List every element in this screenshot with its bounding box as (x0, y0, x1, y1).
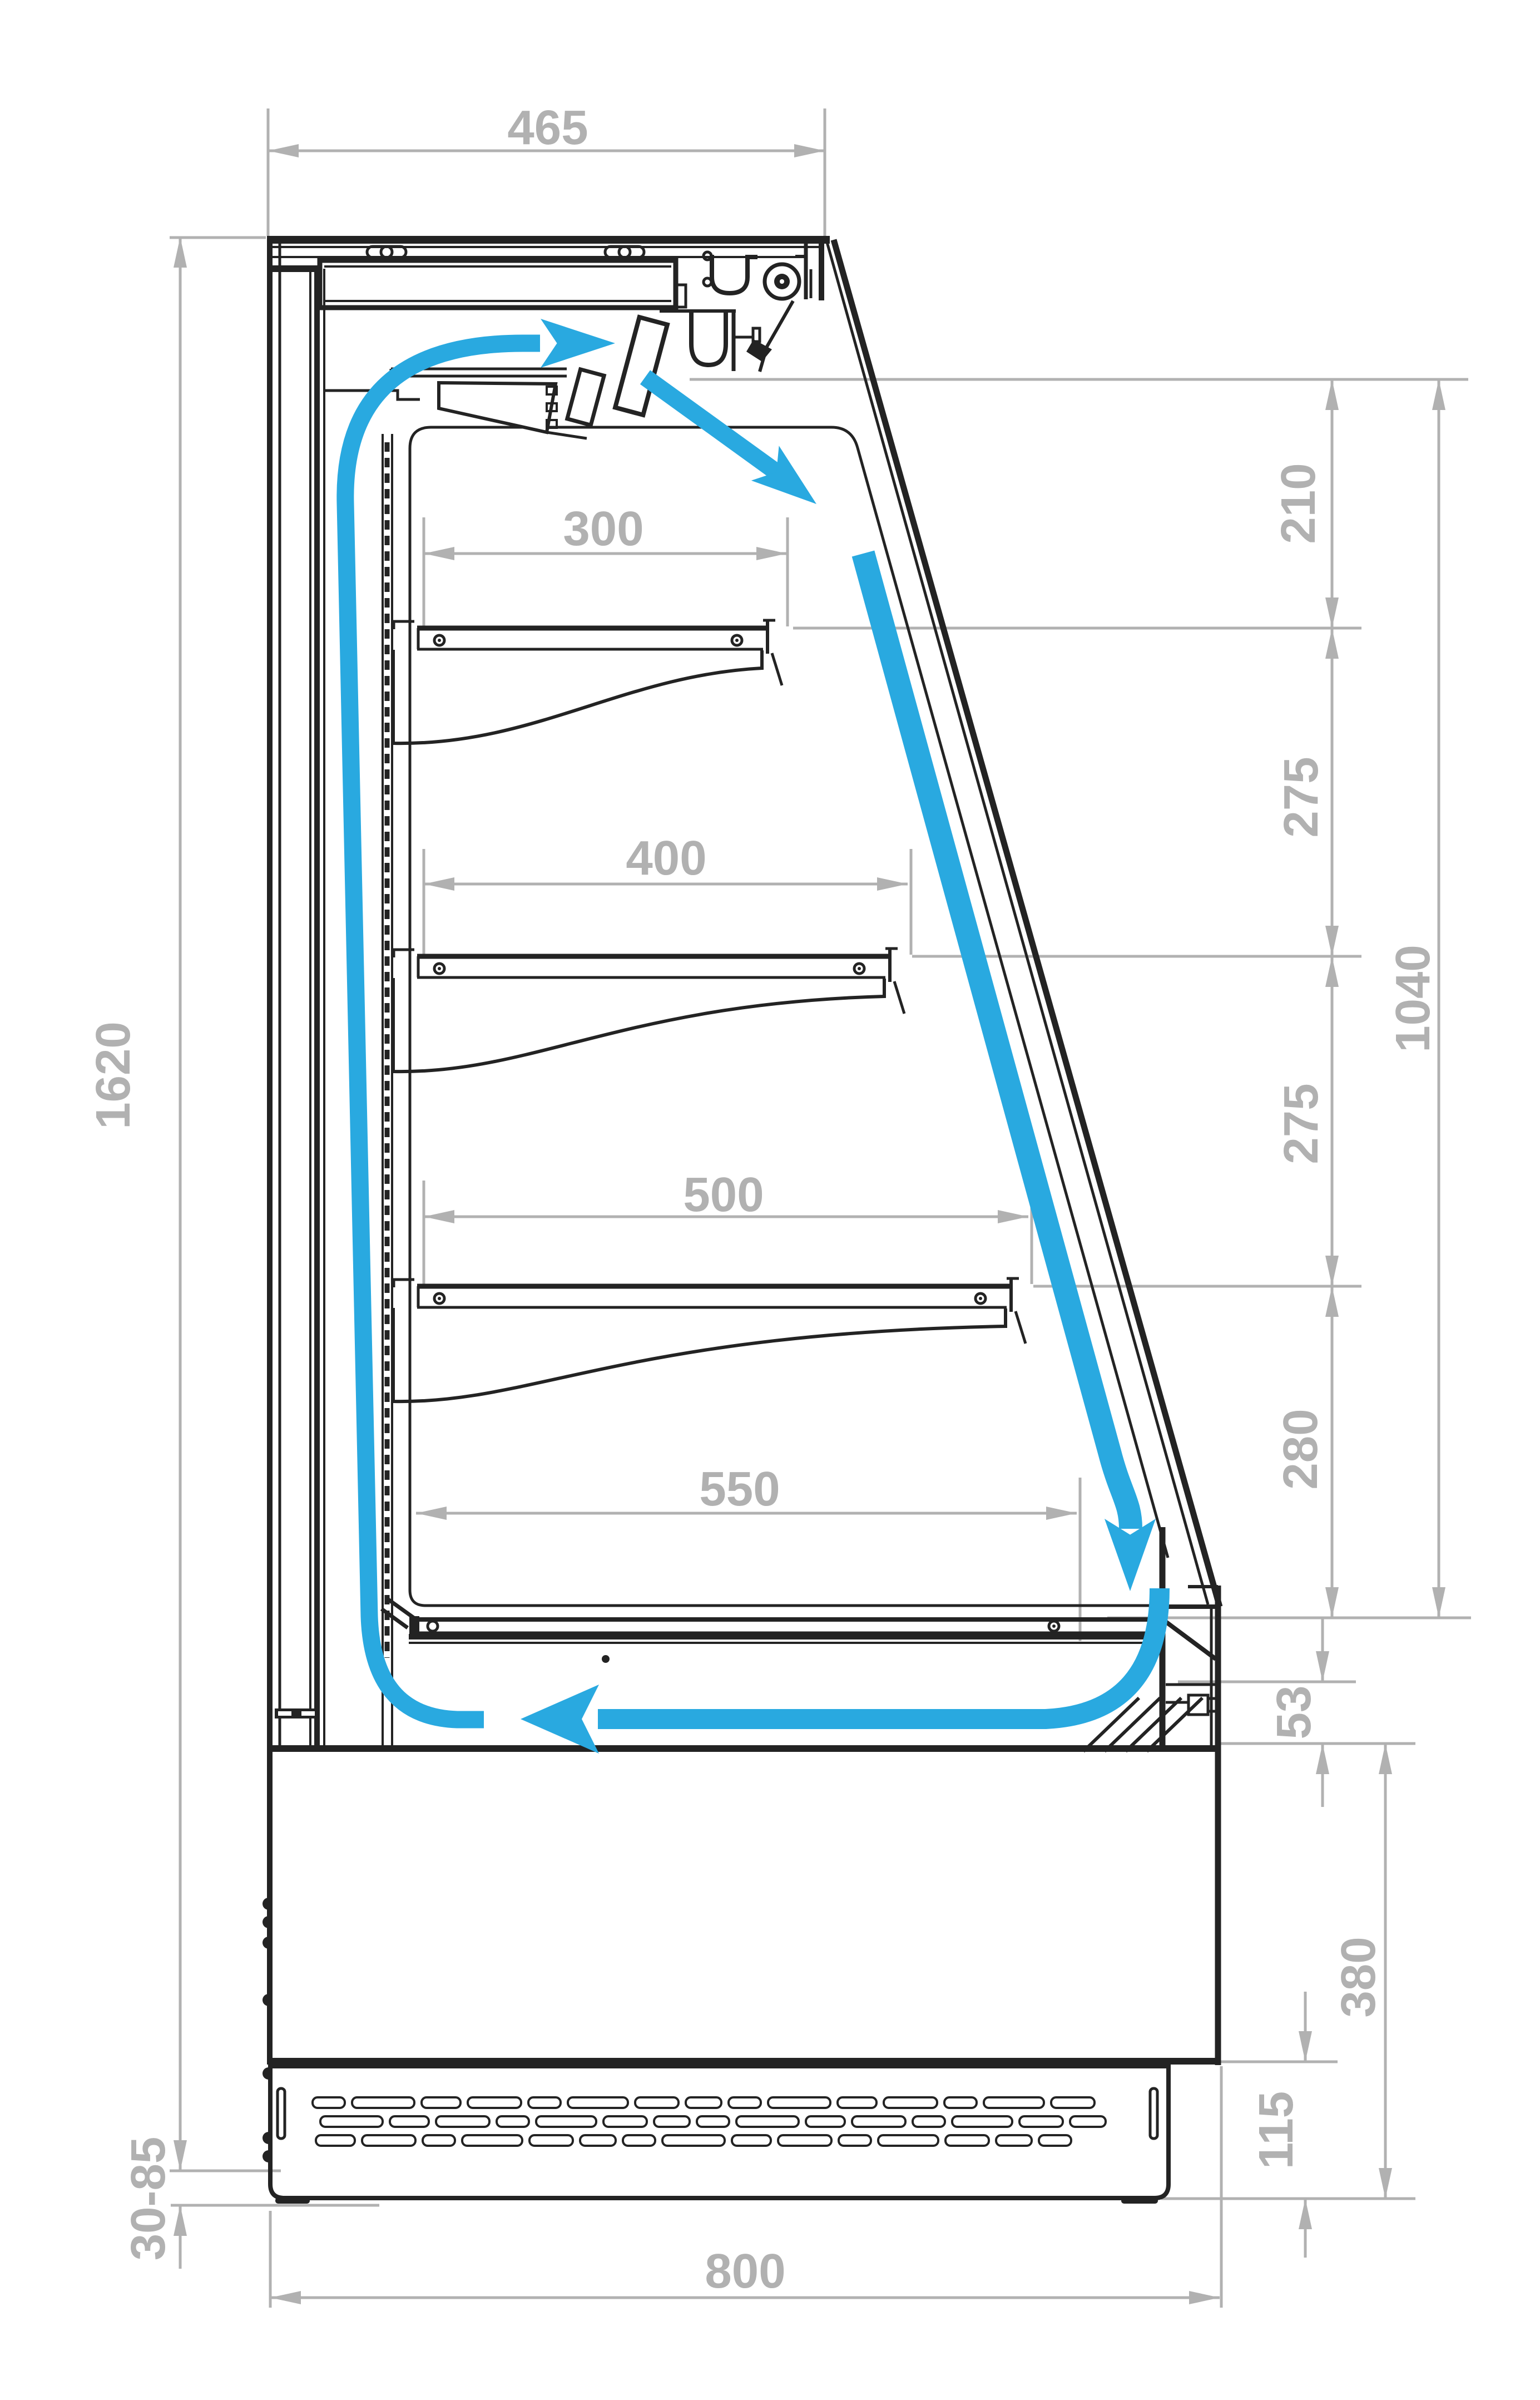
svg-text:300: 300 (563, 502, 643, 556)
svg-text:500: 500 (683, 1168, 764, 1222)
svg-text:53: 53 (1267, 1686, 1321, 1740)
svg-text:275: 275 (1274, 1083, 1328, 1164)
svg-text:380: 380 (1331, 1937, 1385, 2017)
svg-text:1620: 1620 (86, 1021, 140, 1129)
svg-text:800: 800 (705, 2244, 785, 2298)
svg-text:465: 465 (507, 101, 588, 155)
svg-text:275: 275 (1274, 757, 1328, 837)
svg-text:280: 280 (1274, 1409, 1328, 1489)
svg-text:115: 115 (1249, 2091, 1303, 2169)
svg-text:550: 550 (699, 1462, 780, 1516)
svg-text:1040: 1040 (1386, 945, 1440, 1053)
svg-text:400: 400 (626, 831, 706, 885)
svg-text:30-85: 30-85 (121, 2137, 175, 2261)
svg-text:210: 210 (1271, 463, 1325, 544)
